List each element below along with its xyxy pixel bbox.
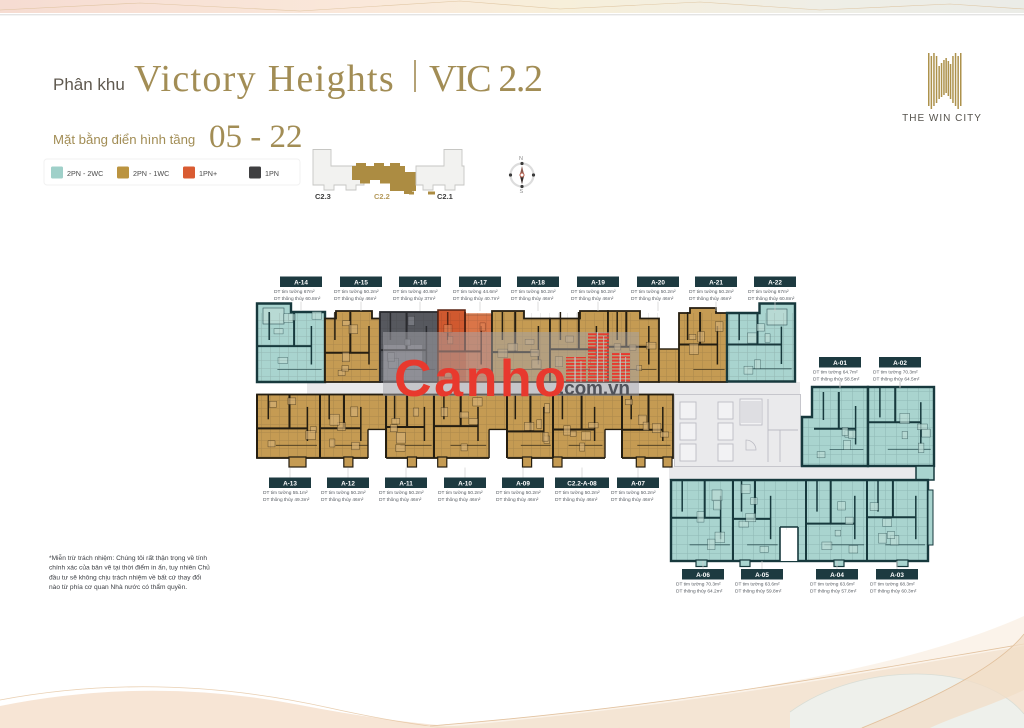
svg-text:S: S [520, 189, 524, 195]
svg-text:C2.2-A-08: C2.2-A-08 [567, 480, 597, 487]
svg-text:*Miễn trừ trách nhiệm: Chúng t: *Miễn trừ trách nhiệm: Chúng tôi rất thậ… [49, 553, 207, 562]
svg-text:DT tim tường 50.2m²: DT tim tường 50.2m² [321, 490, 366, 496]
svg-text:DT tim tường 64.7m²: DT tim tường 64.7m² [813, 370, 858, 376]
svg-text:A-14: A-14 [294, 279, 308, 286]
svg-text:A-11: A-11 [399, 480, 413, 487]
svg-text:chính xác của bản vẽ tại thời: chính xác của bản vẽ tại thời điểm in ấn… [49, 563, 210, 572]
svg-text:DT tim tường 50.2m²: DT tim tường 50.2m² [689, 289, 734, 295]
svg-text:2PN - 1WC: 2PN - 1WC [133, 169, 169, 178]
svg-text:Victory Heights: Victory Heights [134, 58, 395, 100]
svg-text:DT tim tường 70.3m²: DT tim tường 70.3m² [873, 370, 918, 376]
svg-text:đầu tư sẽ không chịu trách nhi: đầu tư sẽ không chịu trách nhiệm về bất … [49, 572, 202, 581]
svg-text:DT thông thủy 64.2m²: DT thông thủy 64.2m² [676, 587, 723, 594]
svg-text:DT tim tường 50.2m²: DT tim tường 50.2m² [571, 289, 616, 295]
svg-text:DT thông thủy 60.3m²: DT thông thủy 60.3m² [870, 587, 917, 594]
svg-text:DT thông thủy 46m²: DT thông thủy 46m² [379, 496, 422, 503]
svg-text:N: N [519, 156, 523, 162]
svg-text:DT thông thủy 40.7m²: DT thông thủy 40.7m² [453, 295, 500, 302]
svg-text:A-06: A-06 [696, 572, 710, 579]
svg-text:A-09: A-09 [516, 480, 530, 487]
svg-text:A-04: A-04 [830, 572, 844, 579]
svg-text:DT tim tường 50.2m²: DT tim tường 50.2m² [379, 490, 424, 496]
svg-text:DT tim tường 50.2m²: DT tim tường 50.2m² [438, 490, 483, 496]
svg-text:DT tim tường 63.6m²: DT tim tường 63.6m² [810, 582, 855, 588]
svg-text:2PN - 2WC: 2PN - 2WC [67, 169, 103, 178]
svg-text:DT thông thủy 46m²: DT thông thủy 46m² [334, 295, 377, 302]
svg-text:DT tim tường 67m²: DT tim tường 67m² [748, 289, 789, 295]
svg-text:Mặt bằng điển hình tầng: Mặt bằng điển hình tầng [53, 132, 195, 147]
svg-text:DT thông thủy 37m²: DT thông thủy 37m² [393, 295, 436, 302]
svg-text:A-07: A-07 [631, 480, 645, 487]
svg-text:A-16: A-16 [413, 279, 427, 286]
svg-text:DT tim tường 67m²: DT tim tường 67m² [274, 289, 315, 295]
svg-text:A-05: A-05 [755, 572, 769, 579]
svg-text:A-10: A-10 [458, 480, 472, 487]
svg-text:A-17: A-17 [473, 279, 487, 286]
svg-text:DT thông thủy 49.3m²: DT thông thủy 49.3m² [263, 496, 310, 503]
svg-text:A-18: A-18 [531, 279, 545, 286]
svg-text:1PN: 1PN [265, 169, 279, 178]
svg-text:05 - 22: 05 - 22 [209, 119, 303, 155]
svg-text:A-20: A-20 [651, 279, 665, 286]
svg-text:DT tim tường 50.2m²: DT tim tường 50.2m² [555, 490, 600, 496]
svg-text:DT thông thủy 58.5m²: DT thông thủy 58.5m² [813, 375, 860, 382]
svg-text:A-21: A-21 [709, 279, 723, 286]
svg-text:C2.3: C2.3 [315, 192, 331, 201]
svg-text:DT thông thủy 46m²: DT thông thủy 46m² [496, 496, 539, 503]
svg-text:DT tim tường 70.3m²: DT tim tường 70.3m² [676, 582, 721, 588]
svg-text:Phân khu: Phân khu [53, 75, 125, 94]
svg-text:VIC 2.2: VIC 2.2 [429, 58, 543, 100]
svg-text:DT tim tường 55.1m²: DT tim tường 55.1m² [263, 490, 308, 496]
svg-text:DT tim tường 50.2m²: DT tim tường 50.2m² [631, 289, 676, 295]
svg-text:DT thông thủy 46m²: DT thông thủy 46m² [689, 295, 732, 302]
svg-text:DT tim tường 44.6m²: DT tim tường 44.6m² [453, 289, 498, 295]
svg-text:DT tim tường 50.2m²: DT tim tường 50.2m² [511, 289, 556, 295]
svg-text:DT thông thủy 57.8m²: DT thông thủy 57.8m² [810, 587, 857, 594]
svg-text:C2.1: C2.1 [437, 192, 453, 201]
svg-text:nào từ phía cơ quan Nhà nước c: nào từ phía cơ quan Nhà nước có thẩm quy… [49, 582, 187, 591]
svg-text:DT thông thủy 60.8m²: DT thông thủy 60.8m² [748, 295, 795, 302]
svg-text:THE WIN CITY: THE WIN CITY [902, 113, 982, 124]
svg-text:DT thông thủy 46m²: DT thông thủy 46m² [511, 295, 554, 302]
svg-text:A-12: A-12 [341, 480, 355, 487]
svg-text:DT tim tường 68.3m²: DT tim tường 68.3m² [870, 582, 915, 588]
svg-text:DT tim tường 40.8m²: DT tim tường 40.8m² [393, 289, 438, 295]
svg-text:DT thông thủy 46m²: DT thông thủy 46m² [571, 295, 614, 302]
svg-text:DT thông thủy 46m²: DT thông thủy 46m² [321, 496, 364, 503]
svg-text:A-01: A-01 [833, 360, 847, 367]
svg-text:DT tim tường 50.2m²: DT tim tường 50.2m² [496, 490, 541, 496]
svg-text:DT tim tường 50.2m²: DT tim tường 50.2m² [334, 289, 379, 295]
svg-text:A-13: A-13 [283, 480, 297, 487]
svg-text:A-03: A-03 [890, 572, 904, 579]
svg-text:DT thông thủy 46m²: DT thông thủy 46m² [555, 496, 598, 503]
svg-text:DT thông thủy 46m²: DT thông thủy 46m² [631, 295, 674, 302]
svg-text:A-19: A-19 [591, 279, 605, 286]
svg-text:DT thông thủy 59.8m²: DT thông thủy 59.8m² [735, 587, 782, 594]
svg-text:A-22: A-22 [768, 279, 782, 286]
svg-text:A-02: A-02 [893, 360, 907, 367]
svg-text:A-15: A-15 [354, 279, 368, 286]
svg-text:DT thông thủy 46m²: DT thông thủy 46m² [611, 496, 654, 503]
svg-text:C2.2: C2.2 [374, 192, 390, 201]
svg-text:DT tim tường 63.6m²: DT tim tường 63.6m² [735, 582, 780, 588]
svg-text:.com.vn: .com.vn [559, 379, 630, 400]
svg-text:DT thông thủy 64.5m²: DT thông thủy 64.5m² [873, 375, 920, 382]
svg-text:1PN+: 1PN+ [199, 169, 217, 178]
svg-text:Canho: Canho [394, 350, 566, 408]
svg-text:DT thông thủy 60.8m²: DT thông thủy 60.8m² [274, 295, 321, 302]
svg-text:DT thông thủy 46m²: DT thông thủy 46m² [438, 496, 481, 503]
svg-text:DT tim tường 50.2m²: DT tim tường 50.2m² [611, 490, 656, 496]
